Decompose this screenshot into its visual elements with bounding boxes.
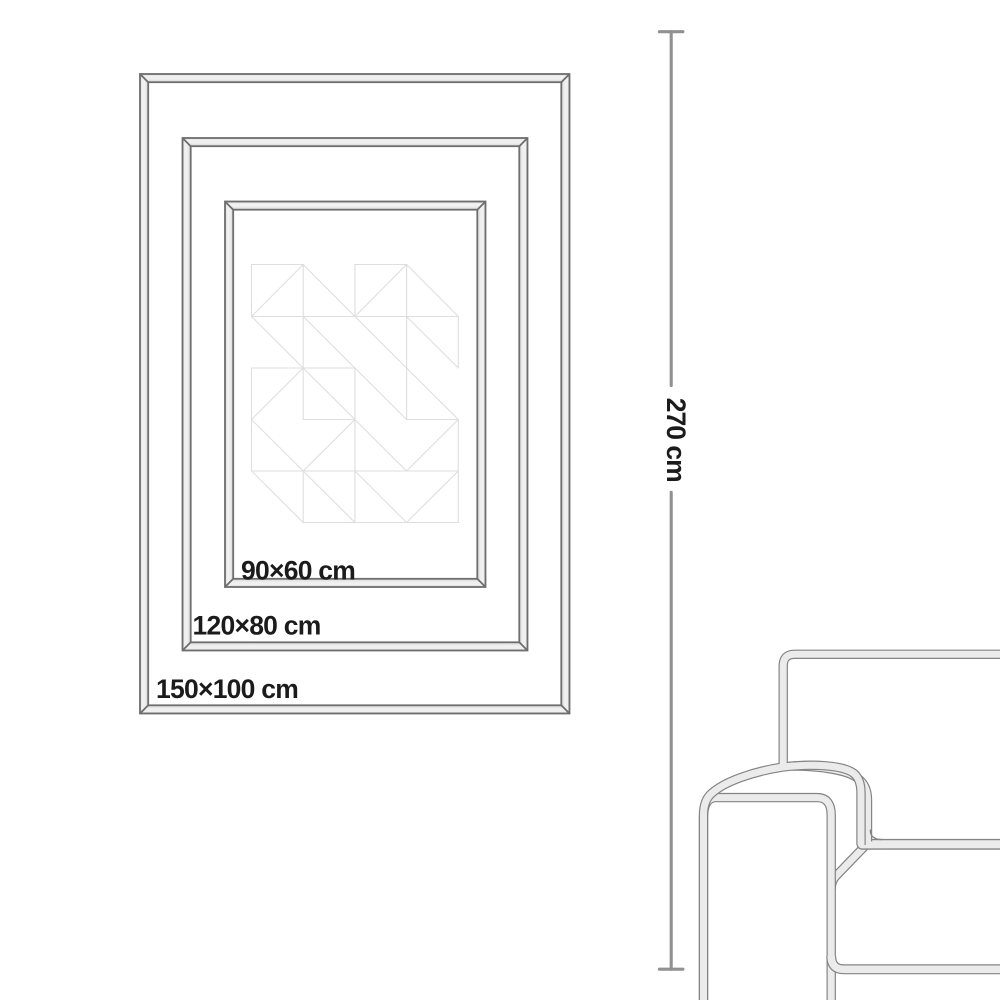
svg-text:150×100 cm: 150×100 cm [156,674,298,704]
svg-text:90×60 cm: 90×60 cm [241,556,355,586]
svg-text:120×80 cm: 120×80 cm [193,611,321,641]
svg-text:270 cm: 270 cm [661,398,691,482]
